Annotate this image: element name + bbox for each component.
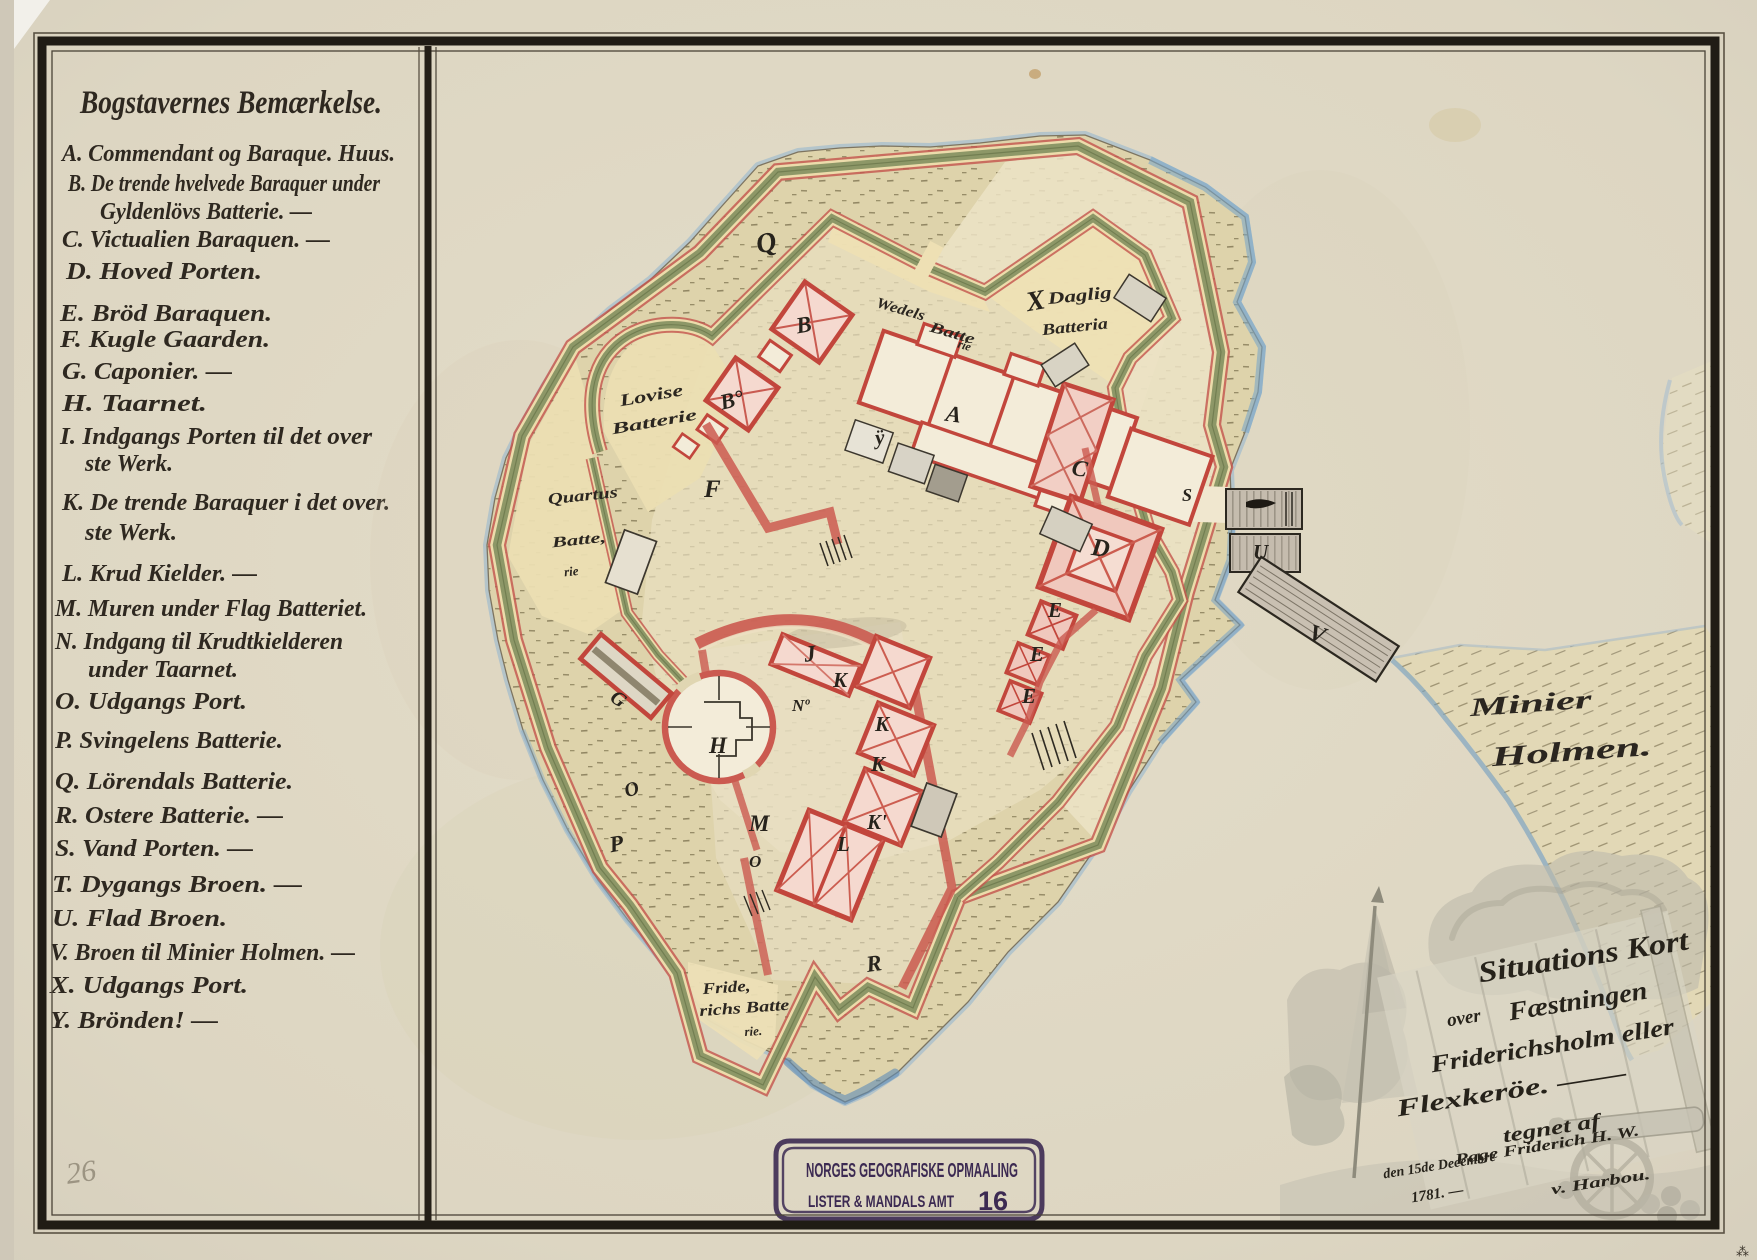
svg-text:D. Hoved Porten.: D. Hoved Porten.	[65, 259, 262, 285]
svg-text:R. Ostere Batterie. —: R. Ostere Batterie. —	[54, 803, 283, 829]
svg-text:G. Caponier. —: G. Caponier. —	[62, 359, 232, 385]
svg-text:⁂: ⁂	[1736, 1244, 1749, 1259]
svg-text:O: O	[749, 852, 761, 871]
svg-text:E. Bröd Baraquen.: E. Bröd Baraquen.	[59, 301, 272, 327]
svg-text:X. Udgangs Port.: X. Udgangs Port.	[49, 973, 248, 999]
svg-text:E: E	[1021, 684, 1036, 708]
svg-text:Q. Lörendals Batterie.: Q. Lörendals Batterie.	[55, 769, 293, 795]
svg-text:K: K	[832, 668, 849, 692]
svg-text:U. Flad Broen.: U. Flad Broen.	[52, 906, 227, 932]
svg-text:R: R	[864, 950, 884, 977]
svg-text:D: D	[1089, 534, 1112, 563]
svg-text:E: E	[1047, 598, 1062, 622]
svg-text:L. Krud Kielder. —: L. Krud Kielder. —	[61, 561, 257, 587]
svg-text:Bogstavernes Bemærkelse.: Bogstavernes Bemærkelse.	[79, 85, 382, 121]
svg-text:O. Udgangs Port.: O. Udgangs Port.	[55, 689, 247, 715]
svg-text:Nº: Nº	[791, 696, 810, 715]
svg-text:K': K'	[866, 810, 887, 834]
svg-text:26: 26	[64, 1154, 98, 1191]
svg-text:H. Taarnet.: H. Taarnet.	[61, 391, 207, 417]
svg-text:K: K	[870, 752, 887, 776]
svg-text:Gyldenlövs Batterie. —: Gyldenlövs Batterie. —	[100, 199, 312, 225]
svg-text:P. Svingelens Batterie.: P. Svingelens Batterie.	[54, 728, 283, 754]
svg-text:16: 16	[978, 1186, 1008, 1216]
svg-text:under Taarnet.: under Taarnet.	[88, 657, 238, 683]
svg-text:U: U	[1253, 540, 1270, 564]
svg-text:F: F	[703, 476, 721, 503]
svg-text:S. Vand Porten. —: S. Vand Porten. —	[55, 836, 253, 862]
svg-text:H: H	[708, 733, 728, 758]
svg-text:M: M	[748, 811, 771, 836]
svg-text:ste Werk.: ste Werk.	[84, 520, 177, 546]
svg-text:L: L	[836, 832, 850, 856]
svg-text:A. Commendant og Baraque. Huus: A. Commendant og Baraque. Huus.	[60, 141, 395, 167]
svg-text:ste Werk.: ste Werk.	[84, 451, 173, 477]
svg-text:rie: rie	[563, 563, 579, 579]
svg-text:B. De trende hvelvede Baraquer: B. De trende hvelvede Baraquer under	[67, 171, 380, 197]
svg-text:K. De trende Baraquer i det ov: K. De trende Baraquer i det over.	[61, 490, 390, 516]
svg-text:Y. Brönden! —: Y. Brönden! —	[50, 1008, 218, 1034]
svg-text:K: K	[874, 712, 891, 736]
svg-text:NORGES GEOGRAFISKE OPMAALING: NORGES GEOGRAFISKE OPMAALING	[806, 1160, 1018, 1182]
svg-text:S: S	[1182, 485, 1192, 505]
svg-text:E: E	[1029, 642, 1044, 666]
svg-text:C. Victualien Baraquen. —: C. Victualien Baraquen. —	[62, 227, 330, 253]
svg-text:M. Muren under Flag Batteriet.: M. Muren under Flag Batteriet.	[54, 596, 367, 622]
svg-text:N. Indgang til Krudtkielderen: N. Indgang til Krudtkielderen	[54, 629, 343, 655]
svg-text:F. Kugle Gaarden.: F. Kugle Gaarden.	[59, 327, 270, 353]
svg-text:rie.: rie.	[744, 1023, 763, 1039]
svg-text:Fride,: Fride,	[701, 978, 751, 998]
svg-text:LISTER & MANDALS AMT: LISTER & MANDALS AMT	[808, 1192, 954, 1211]
svg-text:T. Dygangs Broen. —: T. Dygangs Broen. —	[52, 872, 302, 898]
svg-text:I. Indgangs Porten til det ove: I. Indgangs Porten til det over	[59, 424, 373, 450]
svg-text:V. Broen til Minier Holmen. —: V. Broen til Minier Holmen. —	[50, 940, 355, 966]
